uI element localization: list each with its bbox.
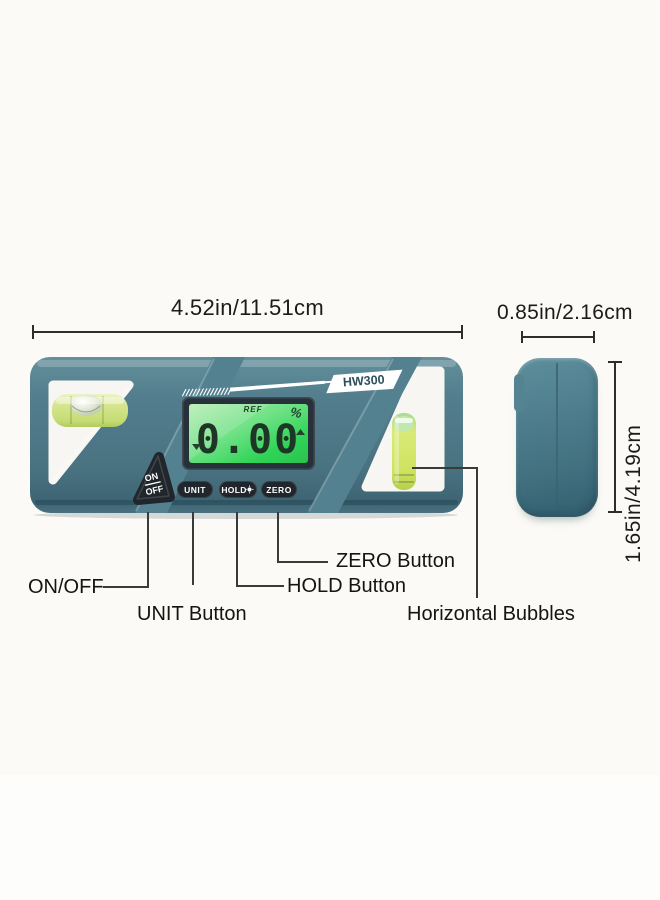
height-dimension-tick-top <box>608 361 622 363</box>
vertical-bubble-vial <box>392 413 416 490</box>
horizontal-bubble-vial <box>52 394 128 427</box>
hold-callout-line-h <box>236 585 284 587</box>
depth-dimension-tick-right <box>593 331 595 343</box>
hold-button: HOLD <box>219 481 257 498</box>
hold-callout-line-v <box>236 512 238 587</box>
width-dimension-label: 4.52in/11.51cm <box>32 295 463 321</box>
hold-button-label: HOLD <box>221 485 246 495</box>
zero-callout-line-h <box>277 561 328 563</box>
depth-dimension-line <box>521 336 595 338</box>
unit-callout-line-v <box>192 512 194 585</box>
unit-button: UNIT <box>177 481 213 498</box>
bubbles-callout-label: Horizontal Bubbles <box>407 603 575 626</box>
lcd-ref-indicator: REF <box>244 405 263 414</box>
product-dimension-diagram: 4.52in/11.51cm 0.85in/2.16cm 1.65in/4.19… <box>0 0 660 900</box>
width-dimension-tick-left <box>32 325 34 339</box>
bubbles-callout-line-h <box>412 467 478 469</box>
zero-callout-label: ZERO Button <box>336 550 455 573</box>
depth-dimension-tick-left <box>521 331 523 343</box>
zero-button-label: ZERO <box>266 485 292 495</box>
side-view-button-profile <box>514 374 524 412</box>
unit-button-label: UNIT <box>184 485 206 495</box>
width-dimension-tick-right <box>461 325 463 339</box>
height-dimension-line <box>614 361 616 513</box>
height-dimension-label: 1.65in/4.19cm <box>622 410 652 578</box>
side-view-seam <box>556 363 558 507</box>
background-band <box>0 775 660 900</box>
bubbles-callout-line-v <box>476 467 478 598</box>
zero-button: ZERO <box>261 481 297 498</box>
unit-callout-label: UNIT Button <box>137 603 247 626</box>
on-off-callout-line-v <box>147 512 149 588</box>
model-label: HW300 <box>342 373 385 390</box>
depth-dimension-label: 0.85in/2.16cm <box>497 301 628 325</box>
height-dimension-tick-bottom <box>608 511 622 513</box>
width-dimension-line <box>32 331 463 333</box>
hold-callout-label: HOLD Button <box>287 575 406 598</box>
on-off-callout-line-h <box>103 586 149 588</box>
zero-callout-line-v <box>277 512 279 563</box>
digital-level-side-view <box>516 358 598 517</box>
on-off-callout-label: ON/OFF <box>28 576 104 599</box>
lcd-angle-value: 0.00 <box>196 417 300 463</box>
digital-level-front-view: HW300 REF % 0.00 ON OFF UNIT <box>25 350 470 525</box>
body-bottom-shade <box>35 500 458 505</box>
